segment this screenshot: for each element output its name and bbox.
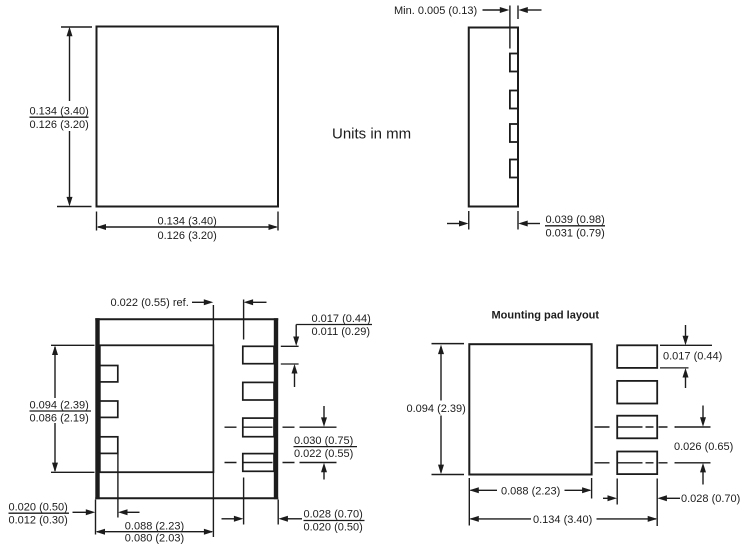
svg-text:0.086 (2.19): 0.086 (2.19) — [30, 412, 89, 424]
svg-text:0.012 (0.30): 0.012 (0.30) — [9, 514, 68, 526]
svg-text:0.028 (0.70): 0.028 (0.70) — [681, 493, 740, 505]
svg-text:0.094 (2.39): 0.094 (2.39) — [30, 399, 89, 411]
svg-text:Min. 0.005 (0.13): Min. 0.005 (0.13) — [394, 5, 477, 17]
svg-text:0.030 (0.75): 0.030 (0.75) — [294, 435, 353, 447]
svg-text:0.094 (2.39): 0.094 (2.39) — [407, 403, 466, 415]
svg-text:Mounting pad layout: Mounting pad layout — [492, 309, 600, 321]
svg-text:0.022 (0.55) ref.: 0.022 (0.55) ref. — [111, 297, 189, 309]
svg-text:0.088 (2.23): 0.088 (2.23) — [125, 520, 184, 532]
svg-text:0.020 (0.50): 0.020 (0.50) — [304, 521, 363, 533]
svg-text:0.134 (3.40): 0.134 (3.40) — [30, 106, 89, 118]
svg-text:0.017 (0.44): 0.017 (0.44) — [312, 313, 371, 325]
svg-text:0.039 (0.98): 0.039 (0.98) — [546, 214, 605, 226]
svg-text:0.126 (3.20): 0.126 (3.20) — [158, 230, 217, 242]
svg-text:0.031 (0.79): 0.031 (0.79) — [546, 227, 605, 239]
svg-text:0.134 (3.40): 0.134 (3.40) — [158, 215, 217, 227]
svg-text:Units in mm: Units in mm — [332, 126, 411, 143]
svg-text:0.022 (0.55): 0.022 (0.55) — [294, 448, 353, 460]
svg-text:0.088 (2.23): 0.088 (2.23) — [501, 485, 560, 497]
svg-text:0.080 (2.03): 0.080 (2.03) — [125, 533, 184, 545]
svg-text:0.126 (3.20): 0.126 (3.20) — [30, 119, 89, 131]
svg-text:0.017 (0.44): 0.017 (0.44) — [663, 351, 722, 363]
svg-text:0.028 (0.70): 0.028 (0.70) — [304, 508, 363, 520]
svg-text:0.011 (0.29): 0.011 (0.29) — [312, 326, 371, 338]
svg-text:0.026 (0.65): 0.026 (0.65) — [674, 441, 733, 453]
svg-text:0.134 (3.40): 0.134 (3.40) — [533, 514, 592, 526]
svg-text:0.020 (0.50): 0.020 (0.50) — [9, 501, 68, 513]
